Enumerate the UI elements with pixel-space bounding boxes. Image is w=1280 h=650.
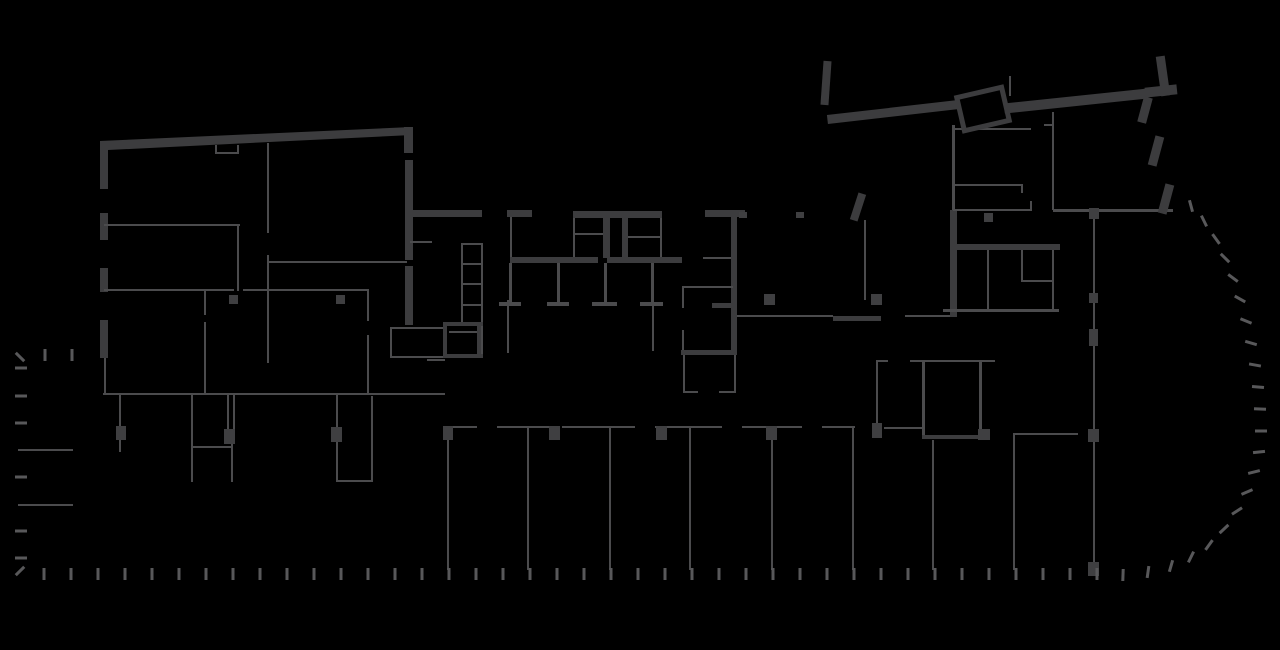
floor-plan-canvas xyxy=(0,0,1280,650)
floor-plan-viewport xyxy=(0,0,1280,650)
